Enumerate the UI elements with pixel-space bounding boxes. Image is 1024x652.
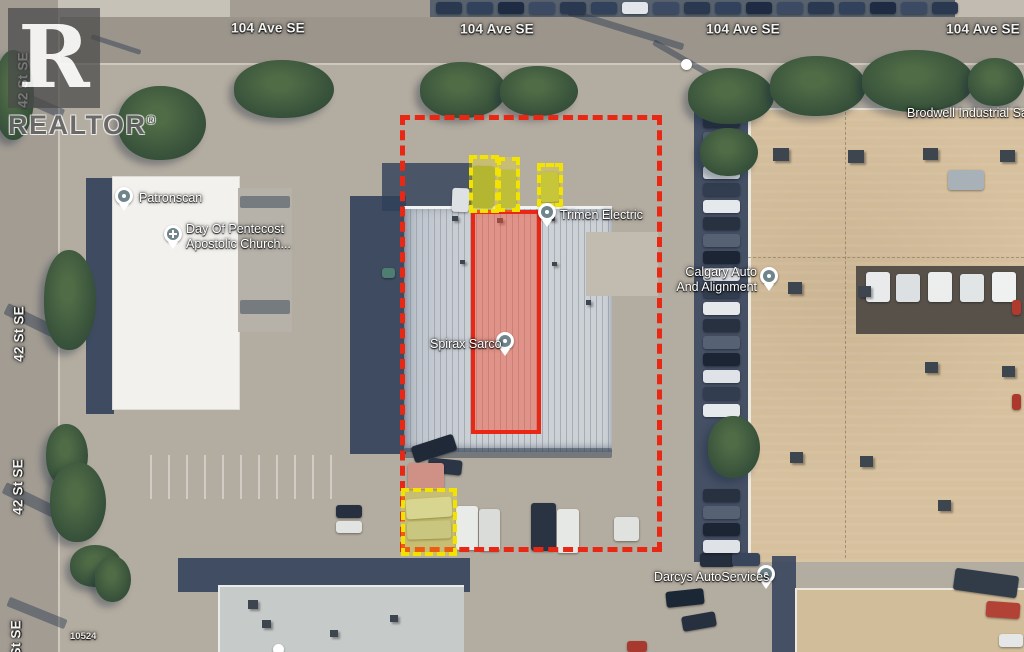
church-label-line1: Day Of Pentecost <box>186 222 284 236</box>
annex-detail <box>240 300 290 314</box>
registered-trademark-symbol: ® <box>147 113 156 127</box>
place-pin-icon <box>538 203 556 221</box>
street-label-42-st: 42 St SE <box>11 459 26 515</box>
church-label: Day Of Pentecost Apostolic Church... <box>186 222 291 252</box>
bottom-right-shadow <box>772 556 796 652</box>
parked-vehicle <box>627 641 647 652</box>
unit-highlight-overlay <box>471 210 541 434</box>
spirax-label: Spirax Sarco <box>430 337 502 351</box>
loading-courtyard <box>856 266 1024 334</box>
tree <box>968 58 1024 106</box>
tree <box>770 56 866 116</box>
calgary-auto-pin <box>760 267 778 291</box>
vehicle-box <box>537 163 563 207</box>
patronscan-label: Patronscan <box>139 191 202 205</box>
parking-stall-line <box>240 455 242 499</box>
street-label-104-ave: 104 Ave SE <box>231 21 305 36</box>
street-label-104-ave: 104 Ave SE <box>460 22 534 37</box>
calgary-label-line2: And Alignment <box>676 280 757 294</box>
annex-detail <box>240 196 290 208</box>
church-shadow <box>86 178 114 414</box>
brodwell-label: Brodwell Industrial Sales <box>907 106 1024 120</box>
parked-vehicle <box>681 611 717 632</box>
parking-stall-line <box>186 455 188 499</box>
top-strip-parked-cars-bg <box>430 0 955 17</box>
church-cross-icon <box>164 225 182 243</box>
vehicle-box <box>497 157 520 212</box>
street-label-42-st: 42 St SE <box>9 620 24 652</box>
place-pin-icon <box>115 187 133 205</box>
parking-stall-line <box>258 455 260 499</box>
realtor-logo-letter: R <box>18 17 89 99</box>
parking-stall-line <box>330 455 332 499</box>
bottom-building <box>218 585 464 652</box>
realtor-wordmark: REALTOR® <box>8 110 155 141</box>
church-label-line2: Apostolic Church... <box>186 237 291 251</box>
realtor-watermark: R REALTOR® <box>8 8 155 141</box>
aerial-map: 104 Ave SE 104 Ave SE 104 Ave SE 104 Ave… <box>0 0 1024 652</box>
street-label-42-st: 42 St SE <box>12 306 27 362</box>
clipped-poi-dot <box>273 644 284 652</box>
realtor-logo: R <box>8 8 100 108</box>
pin-tail <box>168 242 178 249</box>
parking-stall-line <box>150 455 152 499</box>
parked-vehicle <box>336 505 362 518</box>
parking-stall-line <box>204 455 206 499</box>
parking-stall-line <box>312 455 314 499</box>
bottom-right-building <box>795 588 1024 652</box>
industrial-building <box>748 108 1024 562</box>
tree <box>234 60 334 118</box>
tree <box>420 62 506 118</box>
church-pin <box>164 225 182 249</box>
parked-vehicle <box>336 521 362 533</box>
darcys-label: Darcys AutoServices <box>654 570 769 584</box>
warehouse-shadow-west <box>350 196 406 454</box>
street-label-104-ave: 104 Ave SE <box>946 22 1020 37</box>
pin-tail <box>542 220 552 227</box>
roof-joint <box>748 257 1024 258</box>
tree <box>95 556 131 602</box>
pin-tail <box>764 284 774 291</box>
trimen-label: Trimen Electric <box>560 208 643 222</box>
unlabeled-poi-dot <box>681 59 692 70</box>
street-label-104-ave: 104 Ave SE <box>706 22 780 37</box>
parcel-number-label: 10524 <box>70 631 96 642</box>
parking-row-shadow <box>694 92 750 562</box>
tree <box>70 545 122 587</box>
calgary-label-line1: Calgary Auto <box>685 265 757 279</box>
pin-tail <box>119 204 129 211</box>
parking-stall-line <box>276 455 278 499</box>
trimen-pin <box>538 203 556 227</box>
calgary-auto-label: Calgary Auto And Alignment <box>676 265 757 295</box>
tree <box>500 66 578 116</box>
roof-joint <box>845 112 846 558</box>
top-strip-buildings-right <box>955 0 1024 17</box>
parking-stall-line <box>222 455 224 499</box>
church-building <box>112 176 240 410</box>
place-pin-icon <box>760 267 778 285</box>
parked-vehicle <box>665 588 704 608</box>
parking-stall-line <box>294 455 296 499</box>
vehicle-box <box>469 155 499 213</box>
vehicle-box <box>401 488 457 556</box>
top-strip-pavement <box>230 0 430 17</box>
patronscan-pin <box>115 187 133 211</box>
parking-stall-line <box>168 455 170 499</box>
